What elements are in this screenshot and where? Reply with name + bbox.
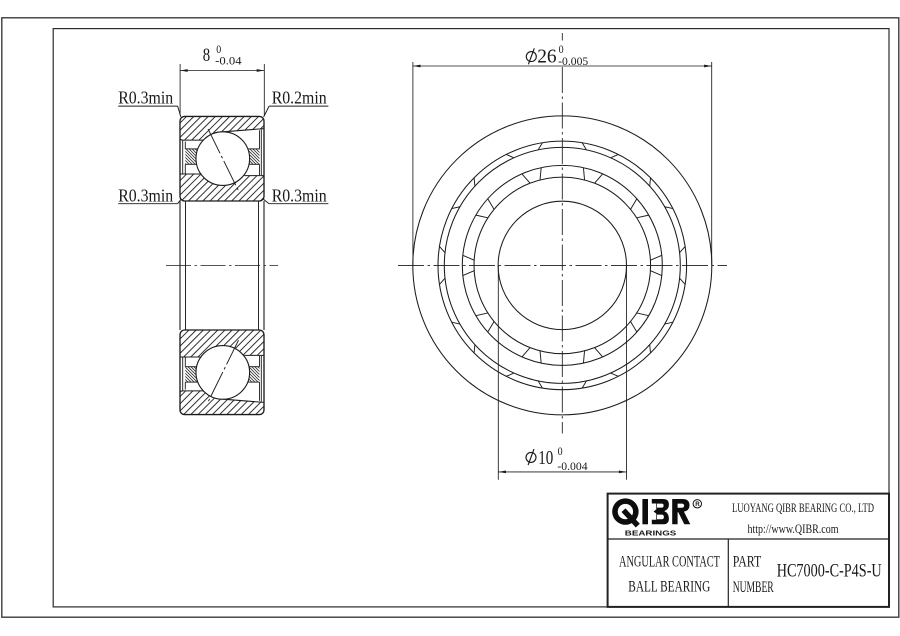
svg-text:HC7000-C-P4S-U: HC7000-C-P4S-U	[777, 562, 882, 582]
svg-text:0: 0	[558, 446, 563, 458]
svg-text:26: 26	[537, 46, 557, 67]
svg-text:LUOYANG QIBR BEARING CO., LTD: LUOYANG QIBR BEARING CO., LTD	[732, 501, 874, 515]
svg-text:PART: PART	[733, 554, 762, 571]
svg-text:R0.3min: R0.3min	[118, 185, 173, 205]
svg-text:R0.2min: R0.2min	[272, 88, 327, 108]
svg-text:-0.004: -0.004	[557, 461, 587, 473]
svg-text:ANGULAR CONTACT: ANGULAR CONTACT	[619, 554, 720, 571]
svg-text:R: R	[695, 501, 700, 508]
svg-text:http://www.QIBR.com: http://www.QIBR.com	[748, 522, 839, 536]
svg-text:R0.3min: R0.3min	[118, 88, 173, 108]
svg-text:-0.005: -0.005	[558, 56, 588, 68]
svg-text:0: 0	[216, 44, 221, 56]
svg-text:10: 10	[538, 448, 553, 469]
svg-text:0: 0	[559, 44, 564, 56]
svg-text:BEARINGS: BEARINGS	[625, 528, 677, 537]
svg-text:-0.04: -0.04	[215, 56, 242, 68]
svg-text:NUMBER: NUMBER	[733, 579, 774, 596]
svg-text:BALL BEARING: BALL BEARING	[628, 579, 710, 596]
svg-text:R0.3min: R0.3min	[272, 185, 327, 205]
svg-text:8: 8	[203, 45, 210, 66]
